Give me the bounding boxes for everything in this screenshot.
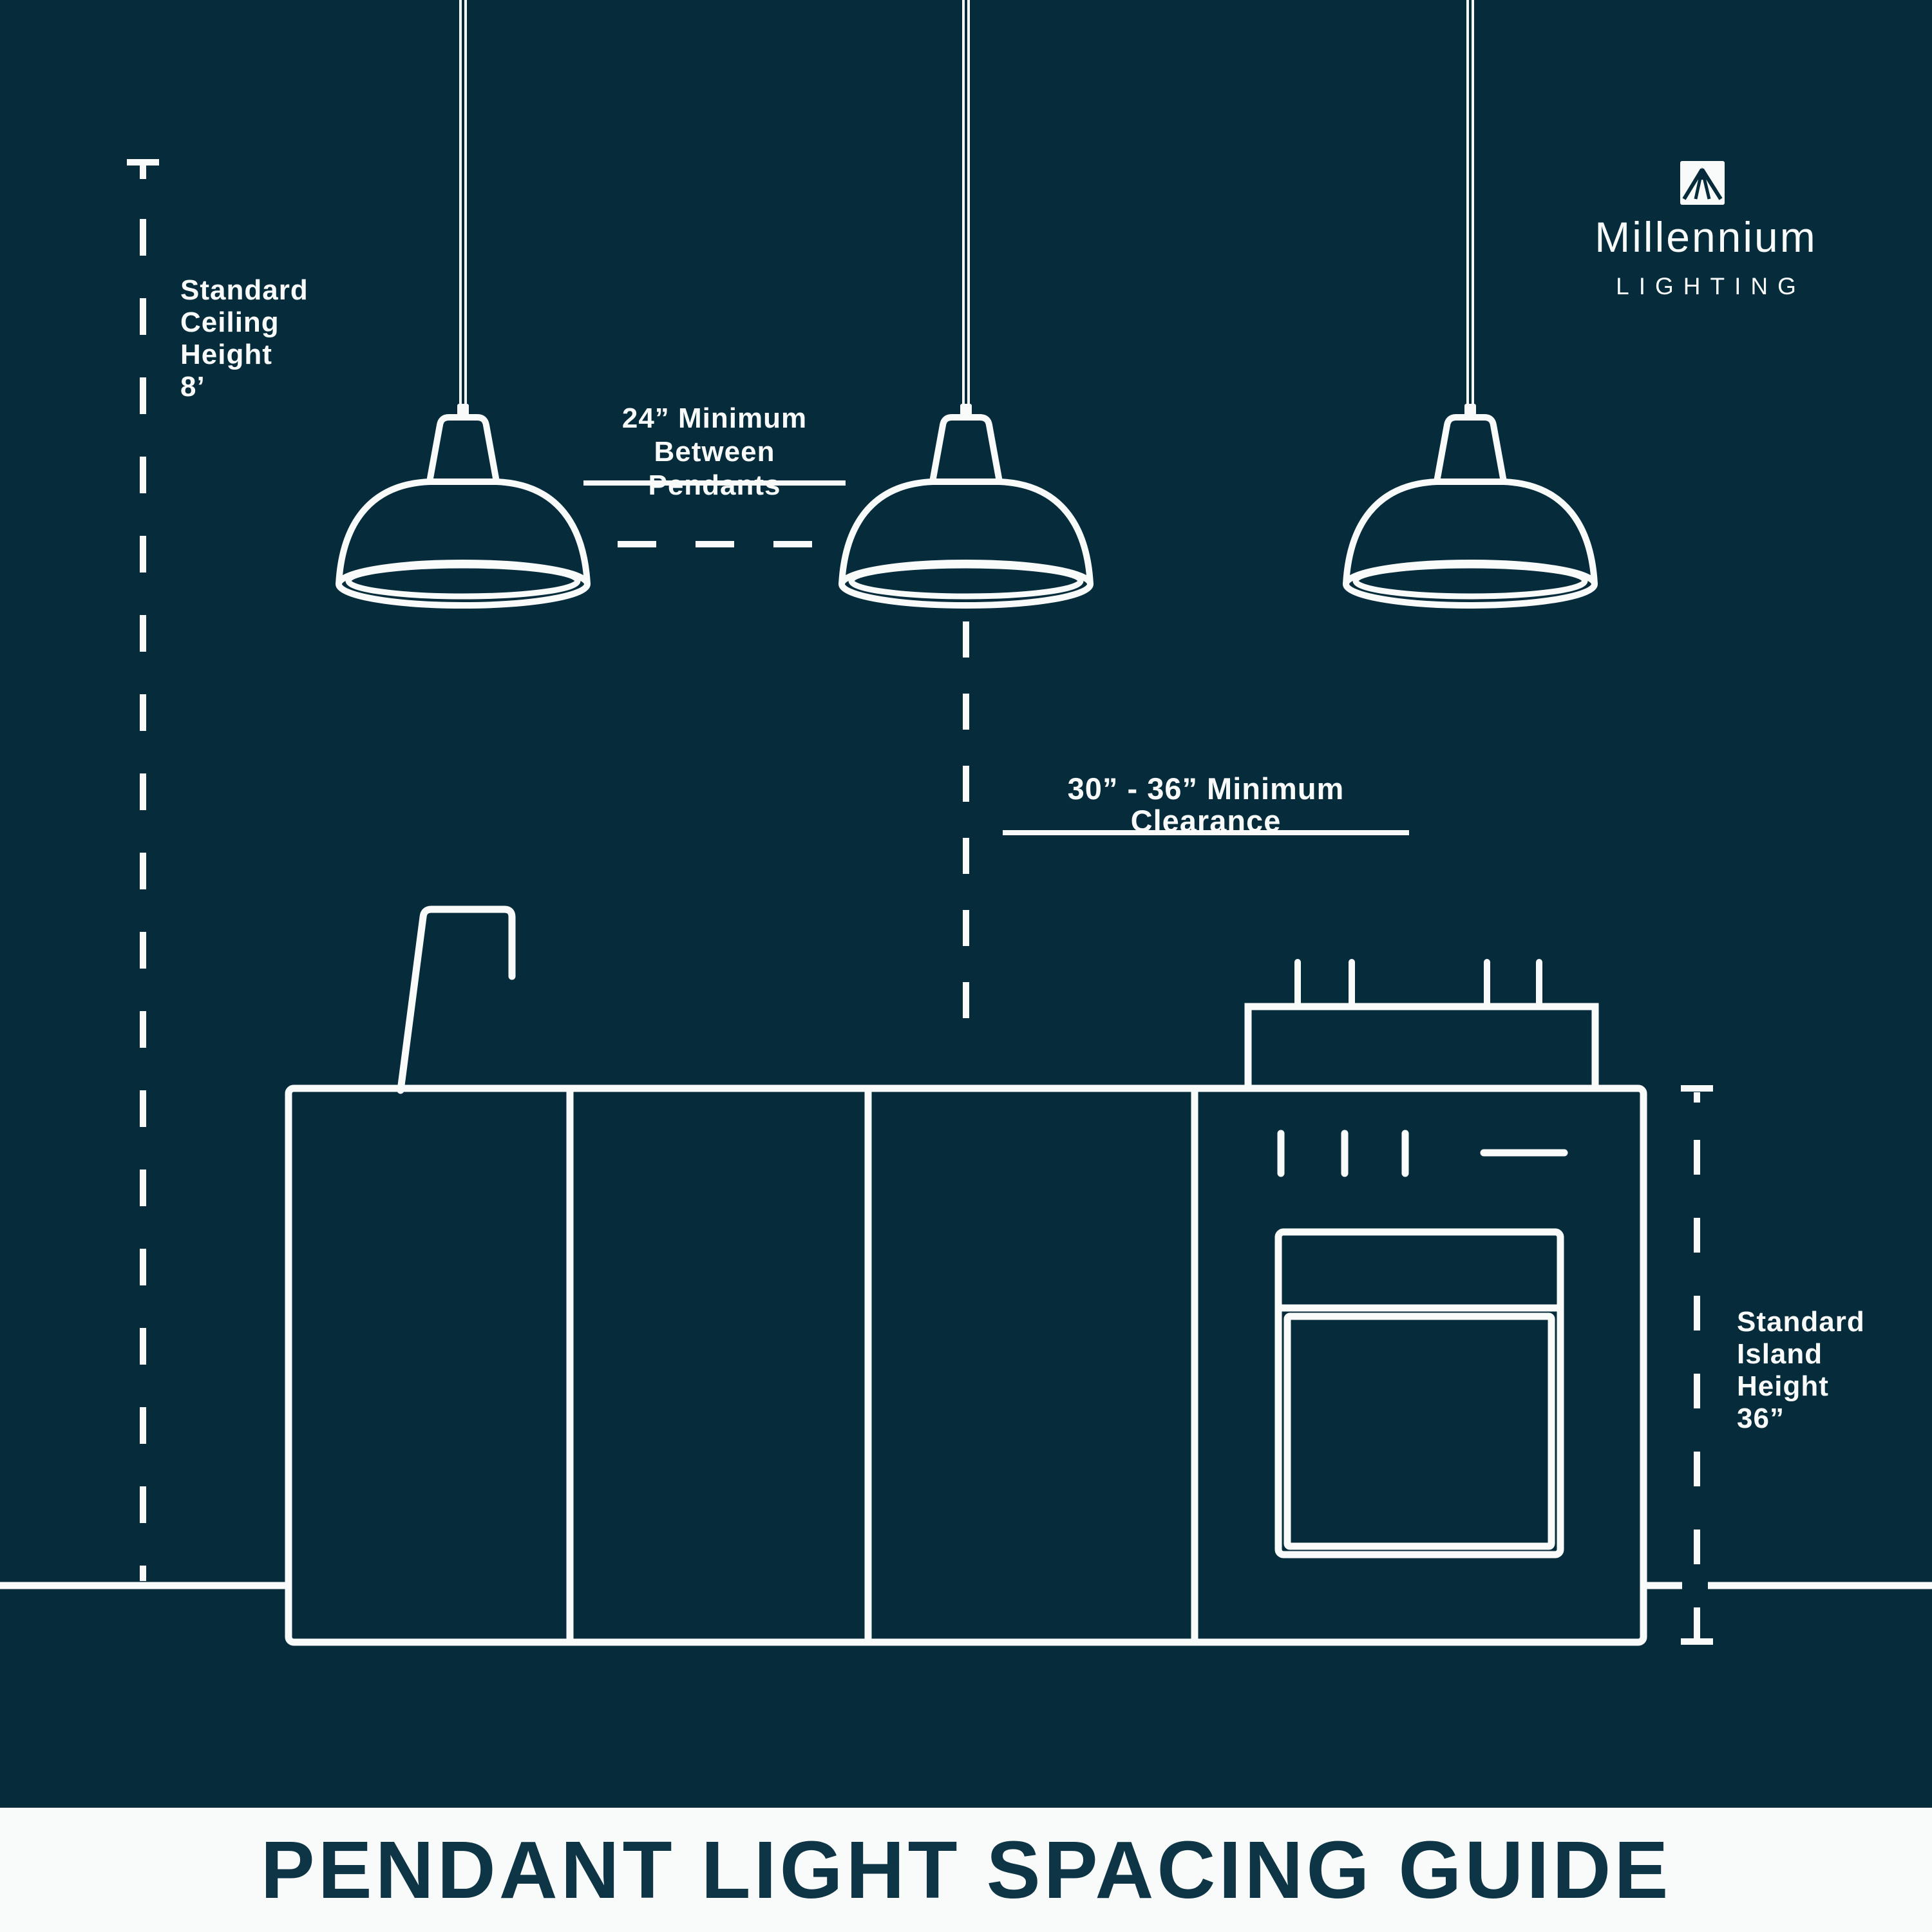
logo-mark-icon [1680,161,1725,205]
oven-door [1278,1232,1560,1555]
kitchen-island [289,909,1643,1642]
ceiling-height-label: Standard Ceiling Height 8’ [180,274,308,403]
stove-backsplash [1248,1007,1595,1088]
ceiling-height-label-line: 8’ [180,371,308,403]
faucet [401,909,512,1090]
pendant-spacing-label-line: 24” Minimum [583,402,846,435]
logo-wordmark: Millennium [1545,213,1867,261]
island-height-label-line: Height [1737,1370,1865,1403]
pendant-spacing-label: 24” Minimum Between Pendants [583,402,846,502]
pendant-light-2 [842,0,1090,605]
island-height-dimension-line [1681,1088,1713,1642]
banner-title: PENDANT LIGHT SPACING GUIDE [261,1823,1672,1917]
ceiling-height-label-line: Height [180,339,308,371]
island-height-label-line: 36” [1737,1403,1865,1435]
logo-subtitle: LIGHTING [1545,273,1867,300]
stove-burner-prongs [1298,962,1539,1007]
clearance-label: 30” - 36” Minimum Clearance [1003,773,1409,837]
pendant-light-3 [1346,0,1595,605]
ceiling-height-dimension-line [127,162,159,1581]
ceiling-height-label-line: Ceiling [180,307,308,339]
island-height-label: Standard Island Height 36” [1737,1306,1865,1435]
oven-window [1287,1316,1551,1546]
pendant-light-1 [339,0,587,605]
pendant-spacing-label-line: Between Pendants [583,435,846,502]
island-height-label-line: Standard [1737,1306,1865,1338]
ceiling-height-label-line: Standard [180,274,308,307]
island-height-label-line: Island [1737,1338,1865,1370]
footer-banner: PENDANT LIGHT SPACING GUIDE [0,1808,1932,1932]
pendant-spacing-guide: Millennium LIGHTING Standard Ceiling Hei… [0,0,1932,1932]
stove-control-knobs [1281,1133,1564,1173]
